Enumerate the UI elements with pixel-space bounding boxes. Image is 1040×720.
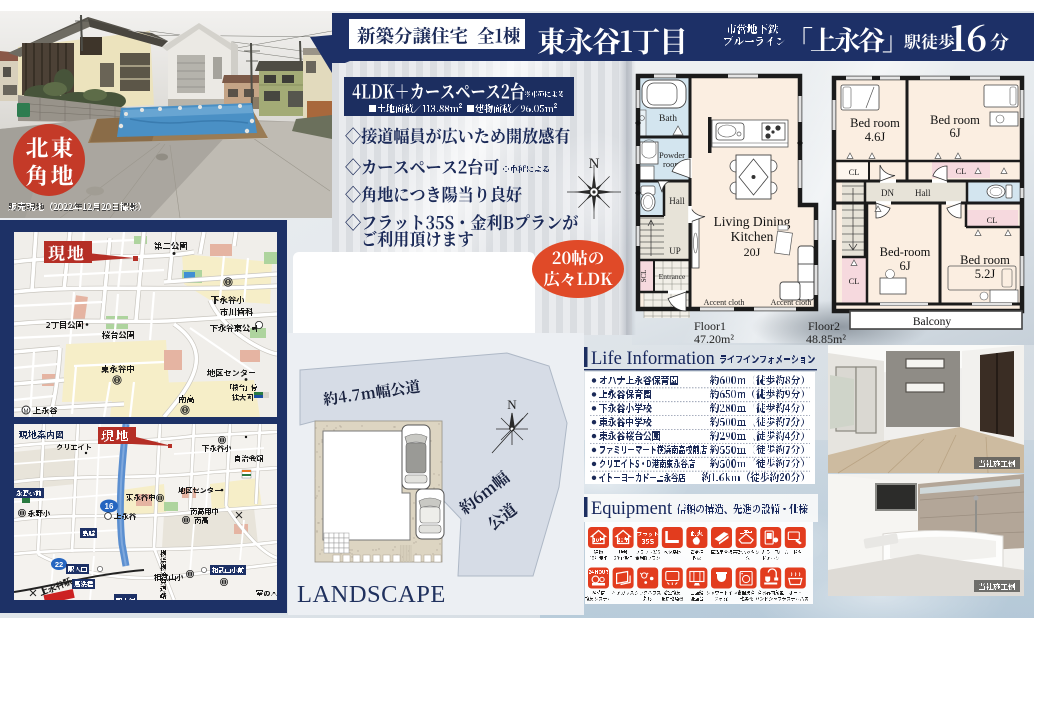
svg-text:DN: DN <box>881 188 894 198</box>
svg-text:20J: 20J <box>744 245 761 259</box>
svg-text:Hall: Hall <box>915 188 931 198</box>
svg-text:Floor2: Floor2 <box>808 319 840 333</box>
svg-text:5.2J: 5.2J <box>975 267 996 281</box>
svg-text:Balcony: Balcony <box>913 316 952 328</box>
svg-text:Bath: Bath <box>659 114 677 124</box>
svg-text:Accent cloth: Accent cloth <box>771 298 812 307</box>
svg-text:CL: CL <box>956 166 967 176</box>
svg-text:CL: CL <box>987 215 998 225</box>
svg-text:Bed room: Bed room <box>850 116 900 130</box>
svg-text:Bed-room: Bed-room <box>880 245 931 259</box>
svg-text:N: N <box>507 397 517 412</box>
svg-text:CL: CL <box>849 167 860 177</box>
svg-text:Hall: Hall <box>669 196 685 206</box>
svg-text:UP: UP <box>669 246 681 256</box>
svg-text:Life Information: Life Information <box>591 349 715 369</box>
svg-text:6J: 6J <box>949 126 960 140</box>
svg-text:16: 16 <box>105 502 114 511</box>
svg-text:6J: 6J <box>899 259 910 273</box>
svg-text:Entrance: Entrance <box>659 272 686 281</box>
svg-text:LANDSCAPE: LANDSCAPE <box>297 581 446 608</box>
svg-text:SCL: SCL <box>640 270 648 283</box>
svg-text:Bed room: Bed room <box>960 253 1010 267</box>
svg-text:Bed room: Bed room <box>930 113 980 127</box>
svg-text:Equipment: Equipment <box>591 499 673 519</box>
svg-text:CL: CL <box>849 276 860 286</box>
svg-text:M: M <box>24 409 29 415</box>
svg-text:4.6J: 4.6J <box>865 130 886 144</box>
svg-text:Accent cloth: Accent cloth <box>704 298 745 307</box>
svg-text:Floor1: Floor1 <box>694 319 726 333</box>
svg-text:Kitchen: Kitchen <box>731 229 774 244</box>
svg-text:22: 22 <box>55 560 63 569</box>
